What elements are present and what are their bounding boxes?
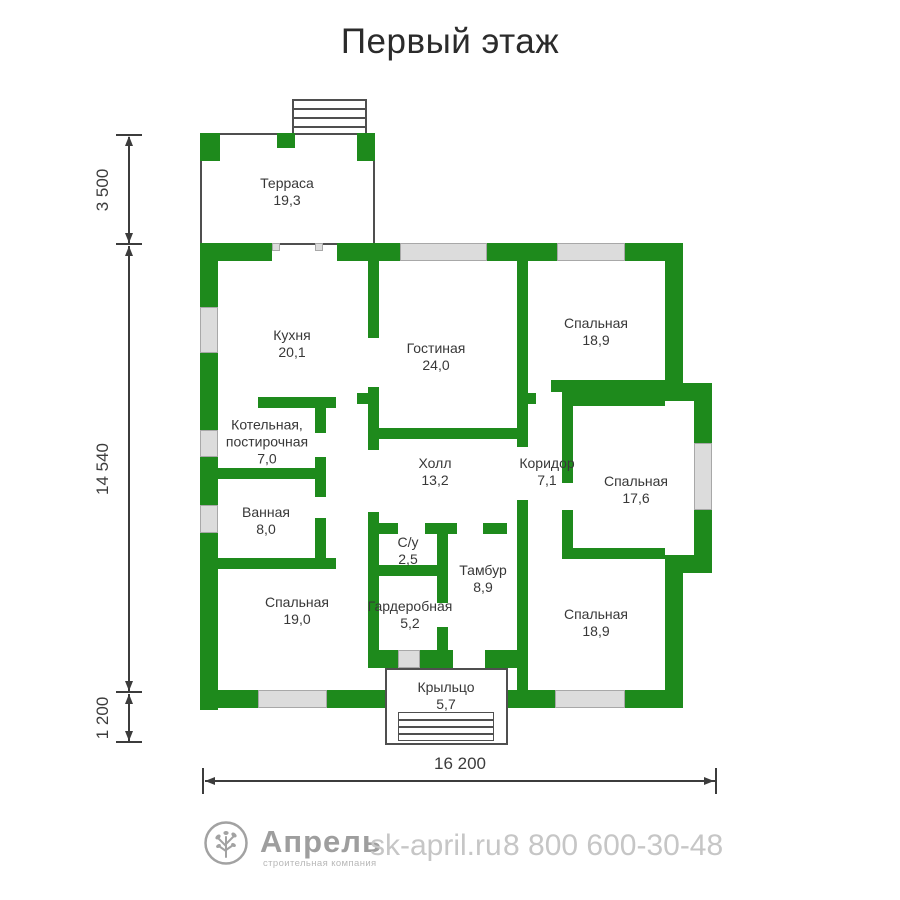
room-name: Тамбур [459, 562, 507, 579]
window [400, 243, 487, 261]
room-name: Гардеробная [368, 598, 453, 615]
company-website: sk-april.ru [370, 829, 502, 863]
room-area: 7,1 [519, 472, 574, 489]
dimension-line [128, 137, 130, 243]
room-name: С/у [398, 534, 419, 551]
wall [277, 133, 295, 148]
wall [368, 650, 398, 668]
wall [665, 555, 712, 573]
company-phone: 8 800 600-30-48 [503, 829, 723, 863]
room-area: 8,9 [459, 579, 507, 596]
room-area: 5,7 [417, 696, 474, 713]
room-name: постирочная [226, 434, 308, 451]
room-label-kitchen: Кухня20,1 [273, 327, 310, 361]
dimension-label-house-depth: 14 540 [93, 443, 113, 495]
wall [562, 548, 665, 559]
wall [315, 408, 326, 433]
door-jamb [315, 243, 323, 251]
step-line [399, 733, 493, 735]
room-label-living: Гостиная24,0 [407, 340, 466, 374]
wall [665, 243, 683, 401]
dimension-arrow [125, 694, 133, 704]
room-name: Котельная, [226, 417, 308, 434]
room-label-bathroom: Ванная8,0 [242, 504, 290, 538]
page-title: Первый этаж [0, 22, 900, 62]
wall [200, 533, 218, 710]
room-label-bedroom-top: Спальная18,9 [564, 315, 628, 349]
wall [200, 133, 220, 161]
wall [200, 353, 218, 430]
wall [218, 558, 336, 569]
room-label-terrace: Терраса19,3 [260, 175, 314, 209]
window [557, 243, 625, 261]
room-label-hall: Холл13,2 [419, 455, 452, 489]
step-line [399, 726, 493, 728]
room-label-bedroom-right: Спальная17,6 [604, 473, 668, 507]
room-name: Ванная [242, 504, 290, 521]
room-label-boiler: Котельная,постирочная7,0 [226, 417, 308, 468]
window [200, 430, 218, 457]
wall [373, 428, 523, 439]
dimension-arrow [205, 777, 215, 785]
dimension-line [205, 780, 715, 782]
wall [694, 383, 712, 443]
room-name: Кухня [273, 327, 310, 344]
wall [200, 690, 258, 708]
window [258, 690, 327, 708]
dimension-arrow [125, 681, 133, 691]
room-area: 24,0 [407, 357, 466, 374]
window [200, 505, 218, 533]
dimension-label-porch-depth: 1 200 [93, 697, 113, 740]
dimension-arrow [125, 233, 133, 243]
window [555, 690, 625, 708]
step-line [293, 126, 366, 128]
dimension-label-terrace-depth: 3 500 [93, 169, 113, 212]
room-name: Холл [419, 455, 452, 472]
wall [258, 397, 336, 408]
wall [508, 690, 555, 708]
wall [368, 387, 379, 450]
room-area: 19,3 [260, 192, 314, 209]
room-label-tambour: Тамбур8,9 [459, 562, 507, 596]
wall [485, 650, 527, 668]
wall [665, 573, 683, 708]
room-area: 7,0 [226, 451, 308, 468]
room-name: Терраса [260, 175, 314, 192]
room-name: Спальная [604, 473, 668, 490]
wall [337, 243, 400, 261]
wall [200, 457, 218, 505]
dimension-tick [116, 243, 142, 245]
wall [368, 512, 379, 658]
room-name: Крыльцо [417, 679, 474, 696]
wall [483, 523, 507, 534]
dimension-arrow [125, 731, 133, 741]
room-area: 5,2 [368, 615, 453, 632]
wall [368, 261, 379, 338]
wall [517, 261, 528, 447]
room-label-corridor: Коридор7,1 [519, 455, 574, 489]
room-name: Гостиная [407, 340, 466, 357]
room-area: 20,1 [273, 344, 310, 361]
window [694, 443, 712, 510]
wall [551, 380, 683, 392]
room-area: 2,5 [398, 551, 419, 568]
wall [218, 468, 317, 479]
wall [357, 393, 368, 404]
room-area: 13,2 [419, 472, 452, 489]
company-tagline: строительная компания [263, 858, 377, 869]
wall [625, 690, 683, 708]
room-name: Спальная [564, 606, 628, 623]
room-area: 17,6 [604, 490, 668, 507]
dimension-arrow [125, 246, 133, 256]
wall [315, 518, 326, 558]
step-line [293, 117, 366, 119]
dimension-arrow [125, 136, 133, 146]
room-area: 18,9 [564, 332, 628, 349]
wall [420, 650, 453, 668]
room-label-bedroom-bottomright: Спальная18,9 [564, 606, 628, 640]
room-area: 8,0 [242, 521, 290, 538]
step-line [399, 719, 493, 721]
step-line [293, 108, 366, 110]
wall [200, 243, 218, 307]
wall [562, 392, 665, 406]
room-label-porch: Крыльцо5,7 [417, 679, 474, 713]
room-label-wc: С/у2,5 [398, 534, 419, 568]
room-name: Спальная [265, 594, 329, 611]
tree-icon [203, 820, 249, 866]
wall [327, 690, 385, 708]
wall [487, 243, 557, 261]
room-name: Коридор [519, 455, 574, 472]
room-label-bedroom-bottomleft: Спальная19,0 [265, 594, 329, 628]
dimension-tick [202, 768, 204, 794]
dimension-tick [715, 768, 717, 794]
wall [528, 393, 536, 404]
dimension-tick [116, 741, 142, 743]
dimension-label-house-width: 16 200 [434, 754, 486, 774]
wall [357, 133, 375, 161]
company-name: Апрель [260, 824, 382, 860]
dimension-line [128, 246, 130, 691]
door-jamb [272, 243, 280, 251]
company-logo [203, 820, 249, 866]
window [200, 307, 218, 353]
room-name: Спальная [564, 315, 628, 332]
wall [437, 523, 448, 603]
window [398, 650, 420, 668]
room-label-wardrobe: Гардеробная5,2 [368, 598, 453, 632]
dimension-arrow [704, 777, 714, 785]
room-area: 18,9 [564, 623, 628, 640]
dimension-tick [116, 691, 142, 693]
floor-plan-page: Первый этаж [0, 0, 900, 900]
room-area: 19,0 [265, 611, 329, 628]
